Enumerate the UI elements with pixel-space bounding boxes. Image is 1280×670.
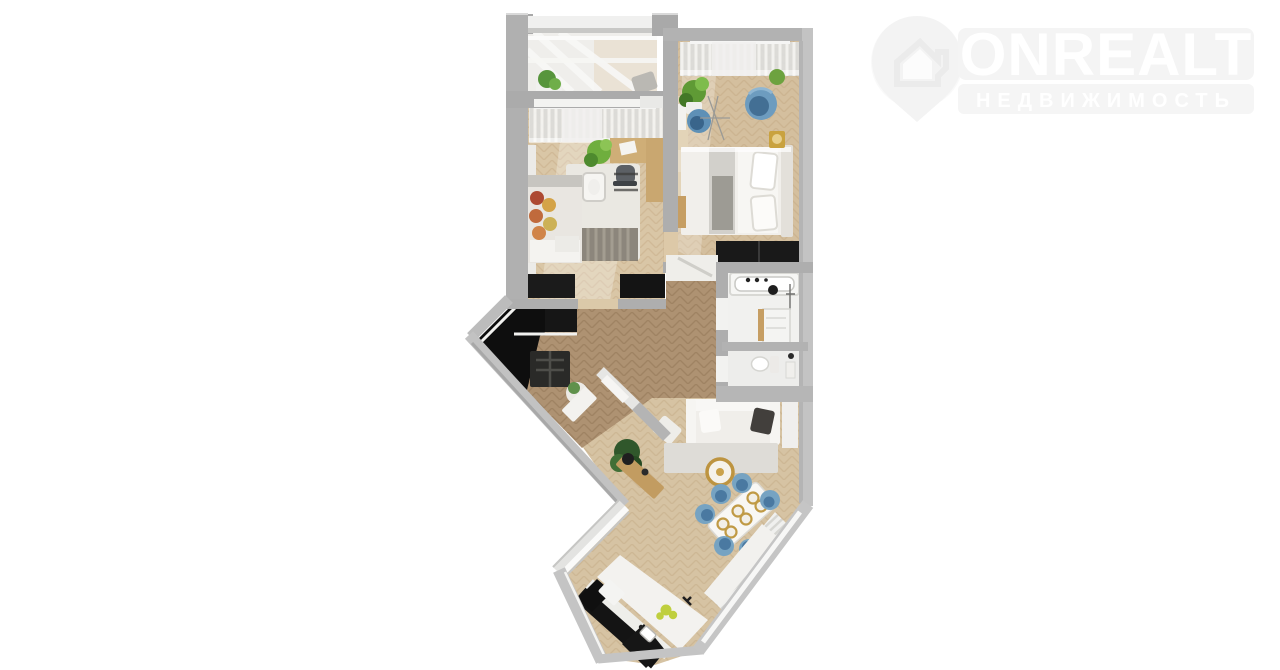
svg-text:ONREALT: ONREALT <box>960 21 1253 88</box>
svg-text:НЕДВИЖИМОСТЬ: НЕДВИЖИМОСТЬ <box>976 90 1236 112</box>
